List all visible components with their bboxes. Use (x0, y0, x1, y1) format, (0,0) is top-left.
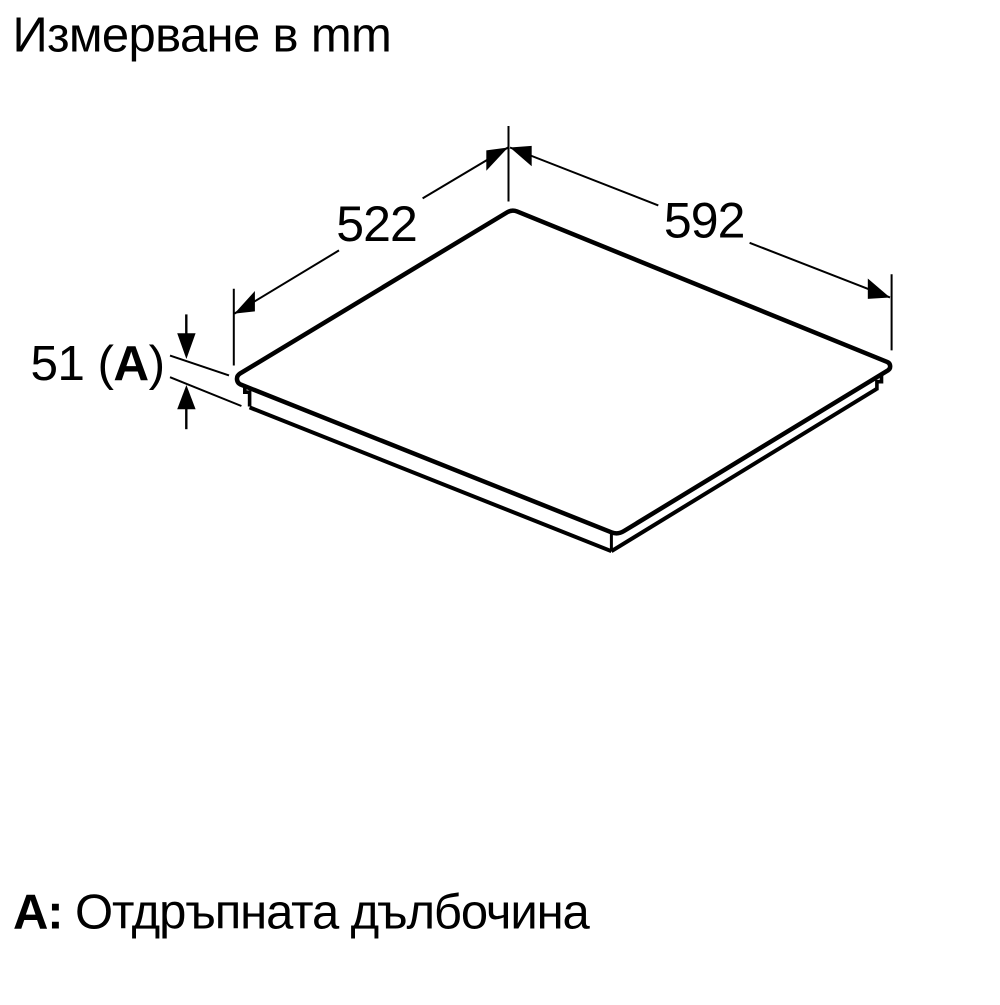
svg-text:51 (A): 51 (A) (31, 336, 165, 391)
svg-text:522: 522 (336, 196, 417, 252)
svg-text:A: Отдръпната дълбочина: A: Отдръпната дълбочина (13, 885, 591, 939)
svg-text:592: 592 (664, 193, 745, 249)
svg-text:Измерване в mm: Измерване в mm (13, 8, 392, 62)
